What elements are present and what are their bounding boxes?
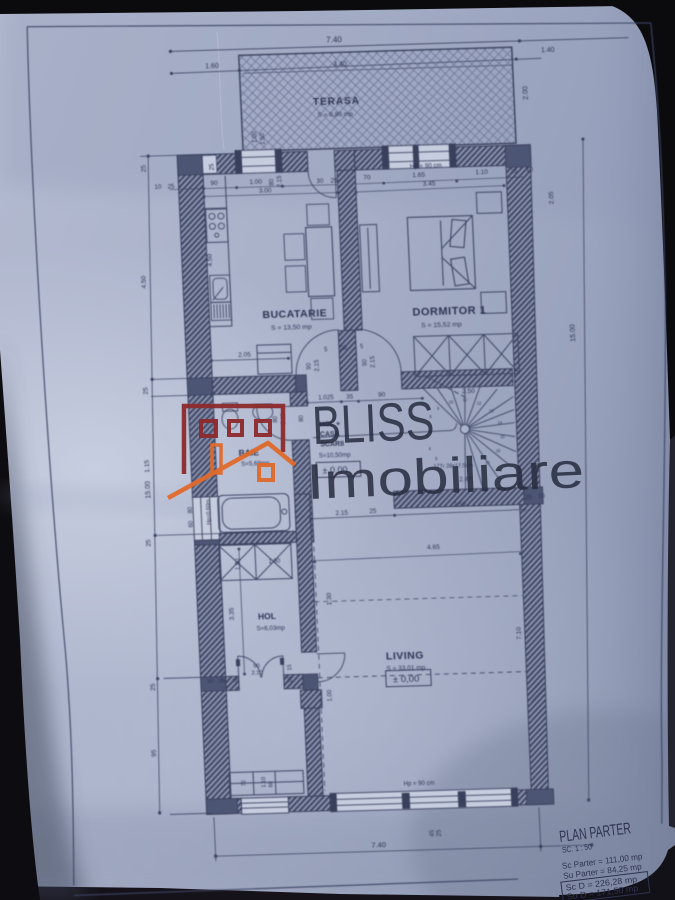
svg-text:25: 25 [150,683,157,691]
svg-text:25: 25 [437,829,443,837]
svg-text:1.30: 1.30 [326,592,334,605]
svg-text:3.00: 3.00 [259,188,272,195]
svg-text:90: 90 [363,359,369,367]
svg-text:1.00: 1.00 [249,179,262,186]
svg-text:4.65: 4.65 [427,544,440,551]
svg-text:14: 14 [497,420,503,425]
svg-text:HOL: HOL [258,611,276,622]
svg-text:80: 80 [273,415,279,423]
svg-text:2.15: 2.15 [335,510,348,517]
svg-text:1.10: 1.10 [475,169,488,176]
svg-text:1.65: 1.65 [412,172,425,179]
svg-text:60: 60 [268,781,274,787]
svg-text:S = 15,52 mp: S = 15,52 mp [421,321,462,329]
svg-text:5: 5 [360,344,364,350]
svg-text:LIVING: LIVING [386,650,425,663]
svg-text:2.50: 2.50 [462,388,475,395]
svg-text:5: 5 [324,347,328,353]
svg-text:80: 80 [188,506,194,514]
svg-text:30: 30 [316,178,324,185]
svg-text:25: 25 [510,168,518,175]
svg-text:DORMITOR 1: DORMITOR 1 [412,304,486,318]
svg-text:S = 33,01 mp: S = 33,01 mp [386,665,426,673]
svg-text:1.50: 1.50 [260,132,267,145]
svg-text:90: 90 [210,180,218,187]
svg-text:90: 90 [253,664,260,670]
svg-text:7.40: 7.40 [326,35,343,44]
svg-text:1.40: 1.40 [541,47,555,54]
svg-text:4.50: 4.50 [141,275,149,288]
svg-text:60: 60 [189,520,195,528]
svg-text:Hp=0,60m: Hp=0,60m [206,499,213,525]
svg-text:15: 15 [287,664,293,671]
svg-text:25: 25 [288,676,294,683]
svg-text:70: 70 [363,175,371,182]
svg-text:2.15: 2.15 [314,359,321,372]
svg-text:25: 25 [145,539,152,547]
svg-text:25: 25 [340,345,348,352]
svg-text:1.80: 1.80 [268,559,281,565]
svg-text:25: 25 [141,165,148,173]
svg-text:90: 90 [307,362,313,370]
svg-text:1.10: 1.10 [261,777,267,788]
svg-text:80: 80 [269,178,275,186]
svg-text:15.00: 15.00 [145,481,153,499]
svg-text:BUCATARIE: BUCATARIE [262,307,327,321]
svg-text:25: 25 [330,178,338,185]
svg-text:4.40: 4.40 [333,61,347,68]
svg-text:95: 95 [233,678,240,684]
svg-text:10: 10 [526,167,534,174]
svg-text:10: 10 [448,399,454,404]
svg-text:1.00: 1.00 [327,689,334,702]
svg-text:1.80: 1.80 [235,558,242,571]
svg-text:7.10: 7.10 [516,627,524,640]
svg-text:1.00: 1.00 [252,131,259,144]
svg-text:45: 45 [430,829,436,837]
svg-text:Hp = 90 cm: Hp = 90 cm [404,780,435,787]
svg-text:S = 8,80 mp: S = 8,80 mp [317,111,353,119]
svg-text:10: 10 [154,184,162,191]
svg-text:11: 11 [462,397,467,402]
svg-text:15.00: 15.00 [569,324,577,342]
svg-text:7.40: 7.40 [371,840,386,849]
svg-text:25: 25 [167,183,175,190]
svg-text:80: 80 [299,415,305,423]
svg-text:25: 25 [210,163,216,171]
svg-text:1.15: 1.15 [144,460,152,473]
svg-text:2.15: 2.15 [277,175,284,188]
svg-text:2.00: 2.00 [523,86,531,100]
svg-text:10: 10 [207,679,214,685]
svg-text:72: 72 [241,780,247,786]
svg-text:4.50: 4.50 [207,253,215,266]
svg-text:13: 13 [489,408,495,413]
svg-text:S=6,03mp: S=6,03mp [256,625,285,633]
svg-text:12: 12 [477,401,483,406]
svg-text:2.10: 2.10 [251,670,263,676]
svg-text:25: 25 [143,387,150,395]
svg-text:1.60: 1.60 [205,63,219,70]
svg-text:25: 25 [369,508,377,515]
svg-text:Hp = 90 cm: Hp = 90 cm [410,162,442,170]
svg-text:2.05: 2.05 [548,191,556,204]
svg-text:S = 13,50 mp: S = 13,50 mp [271,324,312,332]
svg-text:9: 9 [437,406,440,411]
svg-text:± 0,00: ± 0,00 [393,674,420,686]
svg-text:3.35: 3.35 [229,607,237,620]
svg-text:2.15: 2.15 [370,355,377,368]
svg-text:TERASA: TERASA [313,96,361,108]
svg-text:BLISS: BLISS [311,391,436,456]
svg-text:3.45: 3.45 [423,181,436,188]
svg-text:25: 25 [219,679,226,685]
svg-text:95: 95 [151,749,158,757]
svg-text:2.05: 2.05 [238,351,251,358]
